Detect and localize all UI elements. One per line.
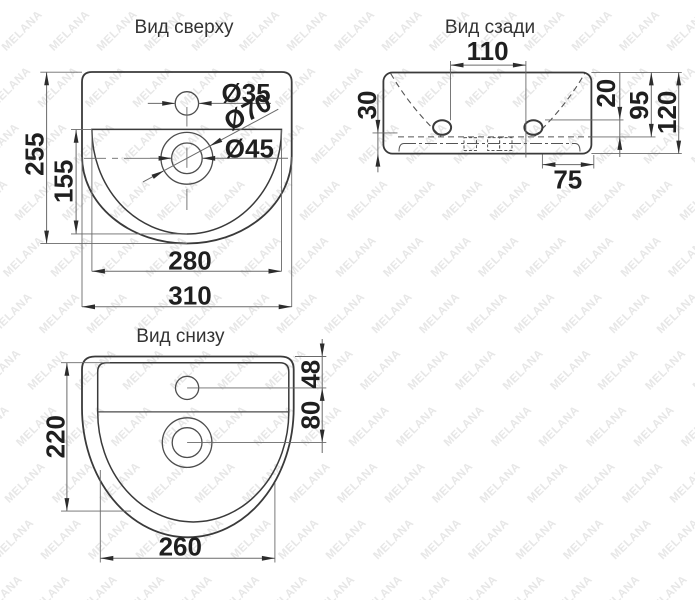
svg-text:255: 255	[19, 133, 49, 176]
svg-text:20: 20	[591, 79, 621, 108]
svg-text:30: 30	[352, 91, 382, 120]
svg-text:95: 95	[624, 91, 654, 120]
svg-text:155: 155	[49, 160, 79, 203]
svg-text:260: 260	[159, 532, 202, 562]
svg-text:Вид снизу: Вид снизу	[136, 326, 225, 347]
svg-text:Ø45: Ø45	[225, 133, 274, 163]
svg-text:220: 220	[41, 415, 71, 458]
svg-text:280: 280	[168, 245, 211, 275]
svg-text:Вид сверху: Вид сверху	[135, 17, 234, 38]
svg-text:310: 310	[168, 281, 211, 311]
svg-text:48: 48	[296, 360, 326, 389]
svg-text:80: 80	[296, 401, 326, 430]
svg-text:120: 120	[652, 91, 682, 134]
svg-text:110: 110	[467, 36, 509, 66]
svg-text:75: 75	[553, 165, 582, 195]
